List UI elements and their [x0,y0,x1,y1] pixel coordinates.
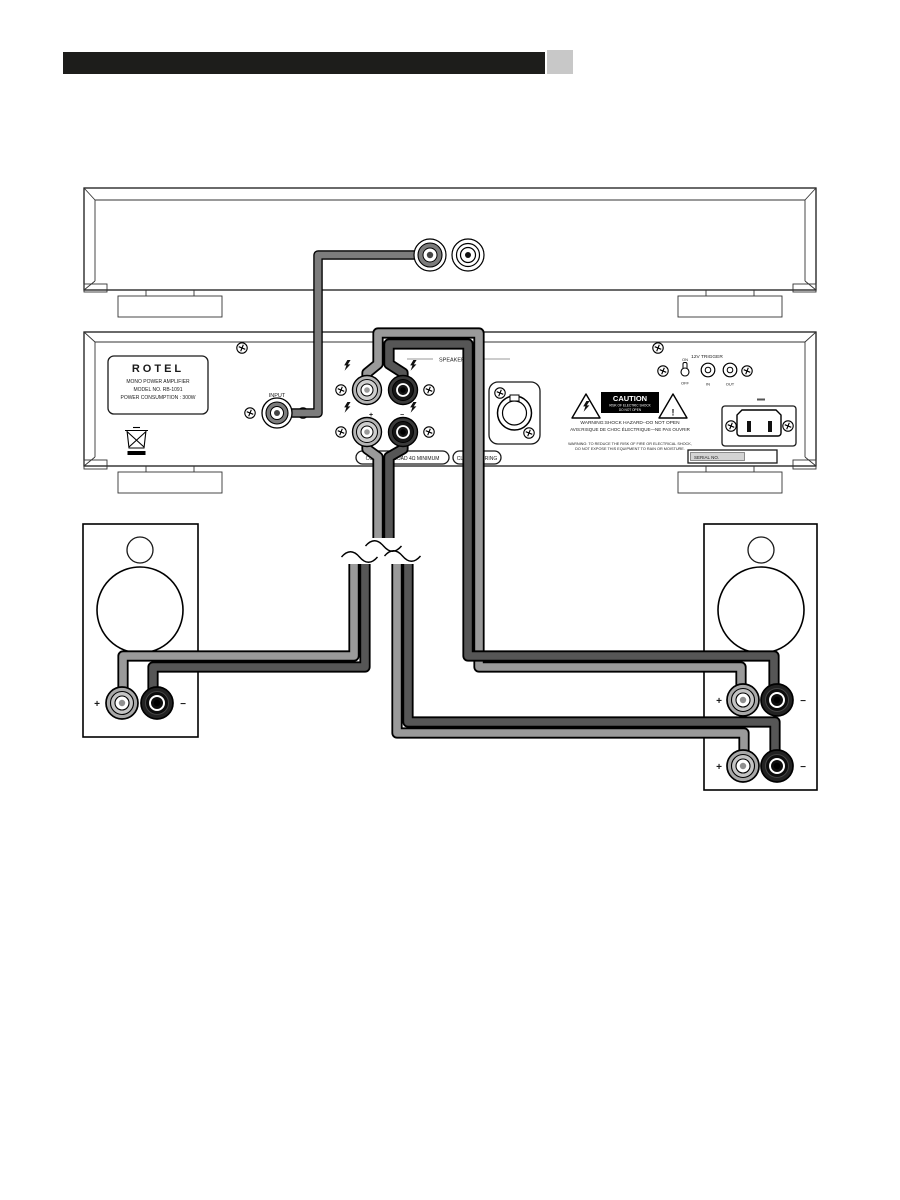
source-corner-foot-right [793,284,816,292]
ac-socket [737,410,781,436]
serial-text: SERIAL NO. [694,455,719,460]
screw-icon [653,343,663,353]
ac-inlet-marking [757,399,765,401]
amp-binding-post-plus-top [353,376,382,405]
trigger-in-label: IN [706,382,710,387]
caution-fire-line2: DO NOT EXPOSE THIS EQUIPMENT TO RAIN OR … [575,447,685,451]
right-speaker-post-plus-lower [727,750,759,782]
screw-icon [783,421,793,431]
speaker-section: SPEAKER [407,358,510,364]
ac-prong-slot [747,421,751,432]
rca-jack-open [452,239,484,271]
lightning-bolt-icon [344,360,350,371]
trigger-title: 12V TRIGGER [691,354,723,360]
badge-line1: MONO POWER AMPLIFIER [126,379,190,385]
trigger-section: 12V TRIGGER ON OFF IN OUT [658,354,752,387]
caution-title: CAUTION [613,394,647,403]
header-accent-block [547,50,573,74]
caution-fire-line1: WARNING: TO REDUCE THE RISK OF FIRE OR E… [568,442,692,446]
screw-icon [658,366,668,376]
amp-corner-foot-left [84,460,107,469]
wiring-diagram: ROTEL MONO POWER AMPLIFIER MODEL NO. RB-… [0,0,900,1200]
screw-icon [336,385,346,395]
lightning-bolt-icon [410,360,416,371]
manual-page: ROTEL MONO POWER AMPLIFIER MODEL NO. RB-… [0,0,900,1200]
trigger-switch-base [681,368,689,376]
trigger-out-label: OUT [726,382,735,387]
badge-line2: MODEL NO. RB-1091 [134,387,183,393]
cable-break-icon [342,552,378,563]
screw-icon [524,428,534,438]
source-foot-left [118,290,222,317]
serial-number-label: SERIAL NO. [688,450,777,463]
caution-risk-line: RISK OF ELECTRIC SHOCK [609,404,651,408]
caution-label: ! CAUTION RISK OF ELECTRIC SHOCK DO NOT … [568,392,692,451]
screw-icon [424,427,434,437]
left-speaker-minus-sign: − [180,699,186,710]
source-foot-right [678,290,782,317]
speaker-label: SPEAKER [439,358,465,364]
amp-input-jack [262,398,292,428]
trigger-on-label: ON [682,357,688,362]
rca-jack-connected [414,239,446,271]
header-bar [63,50,573,74]
amp-foot-right [678,466,782,493]
trigger-in-jack [701,363,715,377]
ac-prong-slot [768,421,772,432]
header-bar-black [63,52,545,74]
amp-binding-post-minus-top [389,376,418,405]
cable-break-icon [366,541,402,552]
trigger-off-label: OFF [681,381,690,386]
cable-break-icon [385,551,421,562]
exclamation-mark: ! [672,408,675,418]
right-speaker-minus-sign-lower: − [800,762,806,773]
speakon-connector [489,382,540,444]
badge-line3: POWER CONSUMPTION : 300W [120,395,195,401]
brand-text: ROTEL [132,363,184,375]
caution-warning-line: WARNING:SHOCK HAZARD--DO NOT OPEN [580,420,680,426]
right-speaker-post-minus-lower [761,750,793,782]
screw-icon [336,427,346,437]
right-speaker-post-minus-upper [761,684,793,716]
screw-icon [245,408,255,418]
screw-icon [495,388,505,398]
screw-icon [237,343,247,353]
amp-binding-post-plus-bottom [353,418,382,447]
caution-avis-line: AVIS:RISQUE DE CHOC ÉLECTRIQUE—NE PAS OU… [570,426,691,432]
source-corner-foot-left [84,284,107,292]
left-speaker-post-plus [106,687,138,719]
amp-corner-foot-right [793,460,816,469]
amp-foot-left [118,466,222,493]
lightning-bolt-icon [410,402,416,413]
right-speaker-plus-sign-lower: + [716,762,722,773]
screw-icon [726,421,736,431]
caution-open-line: DO NOT OPEN [619,408,642,412]
right-speaker-minus-sign-upper: − [800,696,806,707]
source-chassis [84,188,816,290]
left-speaker-post-minus [141,687,173,719]
screw-icon [424,385,434,395]
power-amplifier: ROTEL MONO POWER AMPLIFIER MODEL NO. RB-… [84,332,816,493]
screw-icon [742,366,752,376]
right-speaker-plus-sign-upper: + [716,696,722,707]
ac-inlet [722,399,796,447]
right-speaker-post-plus-upper [727,684,759,716]
trigger-out-jack [723,363,737,377]
brand-badge: ROTEL MONO POWER AMPLIFIER MODEL NO. RB-… [108,356,208,414]
lightning-bolt-icon [344,402,350,413]
left-speaker-plus-sign: + [94,699,100,710]
weee-icon [125,428,148,456]
source-unit [84,188,816,317]
amp-binding-post-minus-bottom [389,418,418,447]
